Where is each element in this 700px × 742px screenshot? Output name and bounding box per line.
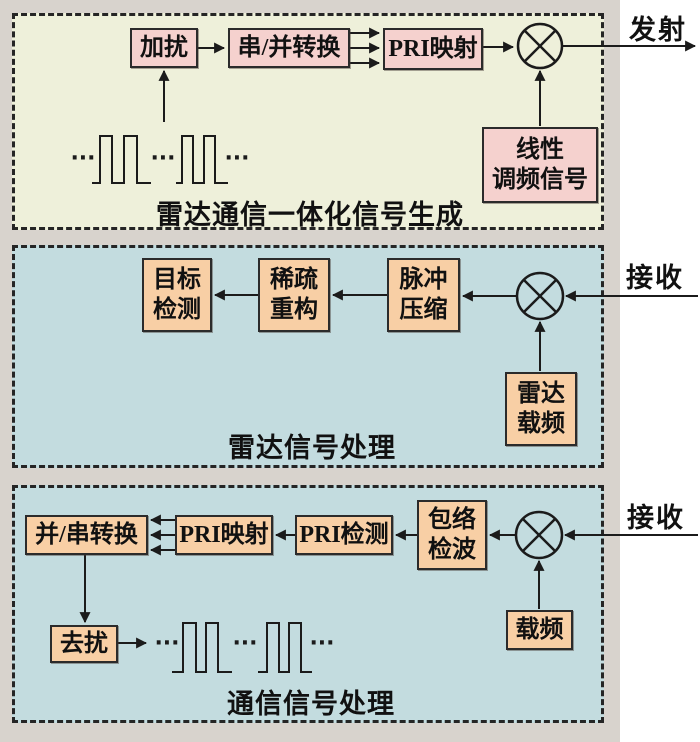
block-pri-mapping-gen: PRI映射 [383,28,483,70]
block-parallel-to-serial-label: 并/串转换 [35,520,138,550]
ellipsis: ··· [70,146,95,171]
panel-title-signal-generation: 雷达通信一体化信号生成 [156,193,464,232]
ellipsis: ··· [224,146,249,171]
panel-title-comm-processing: 通信信号处理 [227,682,395,721]
block-radar-carrier-line2: 载频 [517,409,565,439]
block-carrier: 载频 [506,610,573,650]
block-parallel-to-serial: 并/串转换 [25,515,148,555]
ellipsis: ··· [232,631,257,656]
receive-label-radar: 接收 [615,256,695,295]
transmit-label: 发射 [618,8,698,47]
block-envelope-line1: 包络 [428,505,476,535]
ellipsis: ··· [154,631,179,656]
block-scramble-label: 加扰 [140,33,188,63]
block-sparse-line2: 重构 [270,295,318,325]
block-pri-mapping-comm: PRI映射 [175,515,273,555]
p1-pulse-waveform: ··· ··· ··· [70,136,249,183]
block-envelope-line2: 检波 [428,535,476,565]
block-descramble: 去扰 [50,625,118,663]
block-target-detection-line2: 检测 [153,295,201,325]
block-serial-to-parallel: 串/并转换 [228,28,350,68]
block-scramble: 加扰 [130,28,198,68]
block-lfm-line2: 调频信号 [492,165,588,195]
panel-title-radar-processing: 雷达信号处理 [228,426,396,465]
receive-label-comm: 接收 [616,496,696,535]
block-sparse-reconstruction: 稀疏 重构 [258,258,330,332]
ellipsis: ··· [309,631,334,656]
block-pri-detection-label: PRI检测 [299,520,388,550]
block-sparse-line1: 稀疏 [270,265,318,295]
block-target-detection: 目标 检测 [142,258,212,332]
block-radar-carrier-line1: 雷达 [517,379,565,409]
block-envelope-detection: 包络 检波 [417,500,487,570]
block-target-detection-line1: 目标 [153,265,201,295]
block-pulse-compression-line1: 脉冲 [400,265,448,295]
block-pri-mapping-gen-label: PRI映射 [388,34,477,64]
p2-multiply-icon [517,273,563,319]
block-serial-to-parallel-label: 串/并转换 [238,33,341,63]
p1-multiply-icon [518,24,562,68]
block-pulse-compression: 脉冲 压缩 [387,258,460,332]
p3-pulse-waveform: ··· ··· ··· [154,623,334,672]
block-pri-detection: PRI检测 [295,515,393,555]
block-pri-mapping-comm-label: PRI映射 [179,520,268,550]
p3-multiply-icon [516,512,562,558]
radar-comm-diagram: ··· ··· ··· [0,0,700,742]
block-radar-carrier: 雷达 载频 [505,372,577,446]
block-descramble-label: 去扰 [60,629,108,659]
block-lfm-signal: 线性 调频信号 [482,127,598,203]
ellipsis: ··· [150,146,175,171]
block-pulse-compression-line2: 压缩 [400,295,448,325]
block-carrier-label: 载频 [516,615,564,645]
block-lfm-line1: 线性 [516,135,564,165]
